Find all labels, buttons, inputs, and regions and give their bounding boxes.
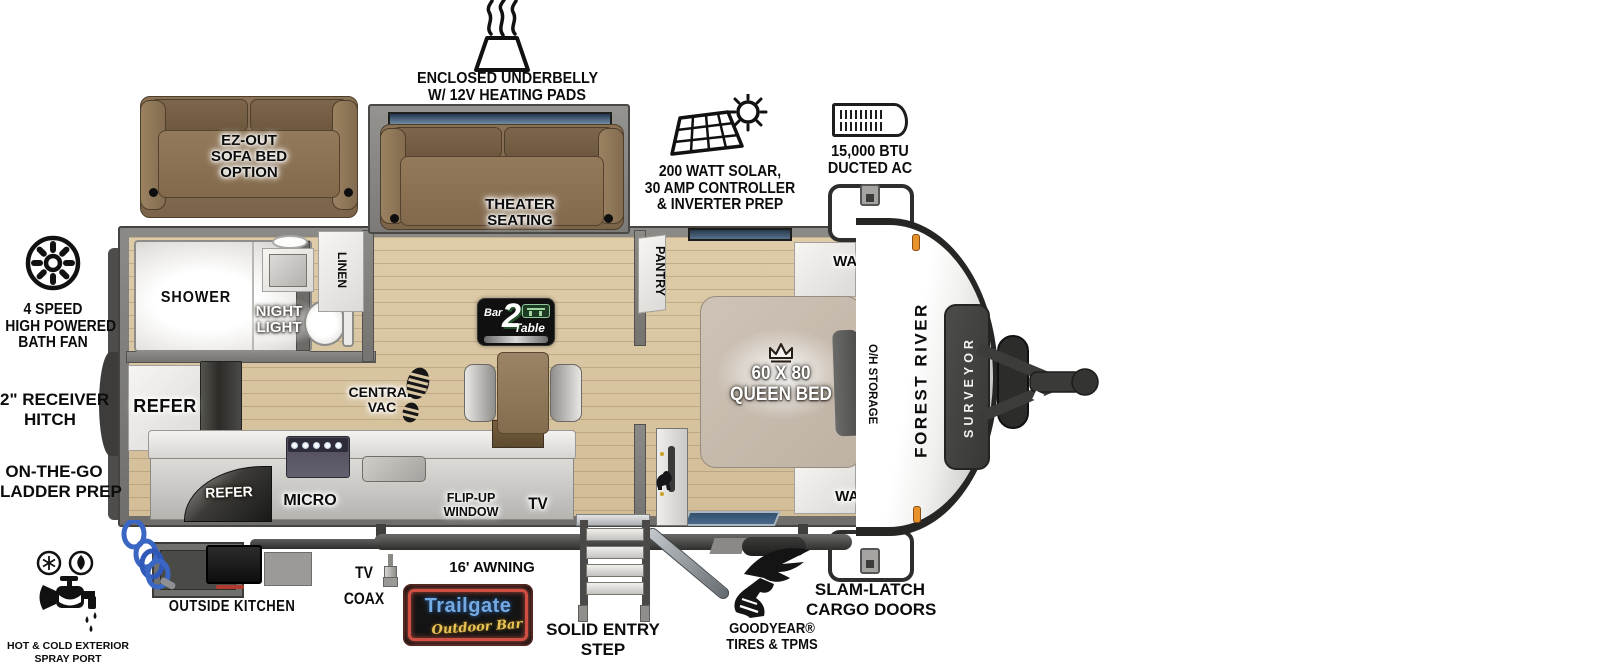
bedroom-window-top bbox=[688, 228, 792, 241]
door-hinge-bottom bbox=[660, 492, 664, 496]
burner-5 bbox=[335, 442, 342, 449]
outside-kitchen-label: OUTSIDE KITCHEN bbox=[165, 598, 299, 615]
bar2table-band bbox=[484, 336, 548, 343]
awning-rail-front bbox=[250, 539, 382, 549]
crown-icon bbox=[766, 342, 796, 363]
bar2table-bar-text: Bar bbox=[484, 307, 502, 319]
oh-storage-label: O/H STORAGE bbox=[858, 334, 878, 434]
ac-unit-icon bbox=[832, 103, 908, 137]
bath-wall bbox=[126, 351, 376, 363]
hitch-assembly bbox=[976, 326, 1106, 438]
theater-dot-left bbox=[390, 214, 399, 223]
entry-step-label: SOLID ENTRYSTEP bbox=[546, 620, 660, 659]
heating-pad-icon bbox=[466, 0, 538, 74]
marker-light-bottom bbox=[913, 506, 921, 523]
spray-hose-icon bbox=[116, 520, 182, 594]
marker-light-top bbox=[912, 234, 920, 251]
solar-panel-icon bbox=[664, 94, 768, 170]
bear-decal-icon bbox=[654, 468, 674, 492]
burner-2 bbox=[302, 442, 309, 449]
refer-label: REFER bbox=[126, 397, 204, 416]
forest-river-wordmark: FOREST RIVER bbox=[913, 288, 933, 473]
dinette-chair-left bbox=[464, 364, 496, 422]
outside-kitchen-panel bbox=[264, 552, 312, 586]
bath-fan-label: 4 SPEEDHIGH POWEREDBATH FAN bbox=[5, 302, 100, 352]
outside-refer-label: REFER bbox=[198, 484, 260, 501]
bar2table-glyph bbox=[522, 304, 550, 318]
door-hinge-top bbox=[660, 452, 664, 456]
micro-label: MICRO bbox=[278, 492, 342, 509]
pantry-label: PANTRY bbox=[646, 240, 666, 302]
cargo-doors-label: SLAM-LATCHCARGO DOORS bbox=[806, 580, 934, 619]
spray-port-icon bbox=[34, 550, 100, 636]
underbelly-label: ENCLOSED UNDERBELLYW/ 12V HEATING PADS bbox=[417, 70, 597, 105]
theater-label: THEATERSEATING bbox=[454, 197, 586, 229]
tv-coax-label: TVCOAX bbox=[339, 560, 388, 613]
flip-window-label: FLIP-UPWINDOW bbox=[434, 492, 508, 519]
bedroom-window-bottom bbox=[683, 511, 781, 526]
sofa-dot-right bbox=[344, 188, 353, 197]
outside-griddle bbox=[206, 545, 262, 584]
goodyear-label: GOODYEAR®TIRES & TPMS bbox=[722, 622, 823, 653]
queen-bed-label: 60 X 80QUEEN BED bbox=[708, 364, 854, 405]
trailgate-name: Trailgate bbox=[405, 595, 531, 618]
cargo-door-bottom-latch-detail bbox=[866, 560, 874, 568]
tv-label: TV bbox=[518, 495, 558, 513]
receiver-hitch-label: 2" RECEIVERHITCH bbox=[0, 390, 100, 429]
floorplan-diagram: SHOWER NIGHTLIGHT LINEN REFER REFER MICR… bbox=[0, 0, 1600, 671]
spray-port-label: HOT & COLD EXTERIORSPRAY PORT bbox=[6, 640, 130, 665]
dinette-chair-right bbox=[550, 364, 582, 422]
bedroom-wall-bottom bbox=[634, 424, 646, 524]
burner-1 bbox=[291, 442, 298, 449]
step-tread-1 bbox=[586, 528, 644, 541]
bar2table-table-text: Table bbox=[514, 321, 545, 335]
kitchen-sink bbox=[362, 456, 426, 482]
solar-label: 200 WATT SOLAR,30 AMP CONTROLLER& INVERT… bbox=[632, 164, 808, 214]
trailgate-logo: Trailgate Outdoor Bar bbox=[403, 584, 533, 646]
burner-3 bbox=[313, 442, 320, 449]
griddle-knobs bbox=[216, 585, 244, 589]
step-tread-4 bbox=[586, 582, 644, 595]
dinette-table bbox=[497, 352, 549, 434]
theater-backrest-left bbox=[392, 127, 502, 158]
goodyear-wingfoot-icon bbox=[724, 540, 812, 620]
linen-label: LINEN bbox=[328, 240, 348, 300]
cargo-door-top-latch-detail bbox=[866, 194, 874, 202]
ceiling-light bbox=[272, 235, 308, 249]
bath-fan-icon bbox=[24, 234, 82, 292]
theater-dot-right bbox=[604, 214, 613, 223]
vanity-sink bbox=[269, 254, 307, 287]
step-tread-3 bbox=[586, 564, 644, 577]
bar2table-logo: Bar 2 Table bbox=[477, 298, 555, 346]
step-tread-2 bbox=[586, 546, 644, 559]
awning-label: 16' AWNING bbox=[446, 560, 538, 576]
burner-4 bbox=[324, 442, 331, 449]
ladder-prep-label: ON-THE-GOLADDER PREP bbox=[0, 462, 108, 501]
sofa-dot-left bbox=[149, 188, 158, 197]
sofa-option-label: EZ-OUTSOFA BEDOPTION bbox=[184, 133, 314, 182]
ac-label: 15,000 BTUDUCTED AC bbox=[814, 143, 926, 178]
